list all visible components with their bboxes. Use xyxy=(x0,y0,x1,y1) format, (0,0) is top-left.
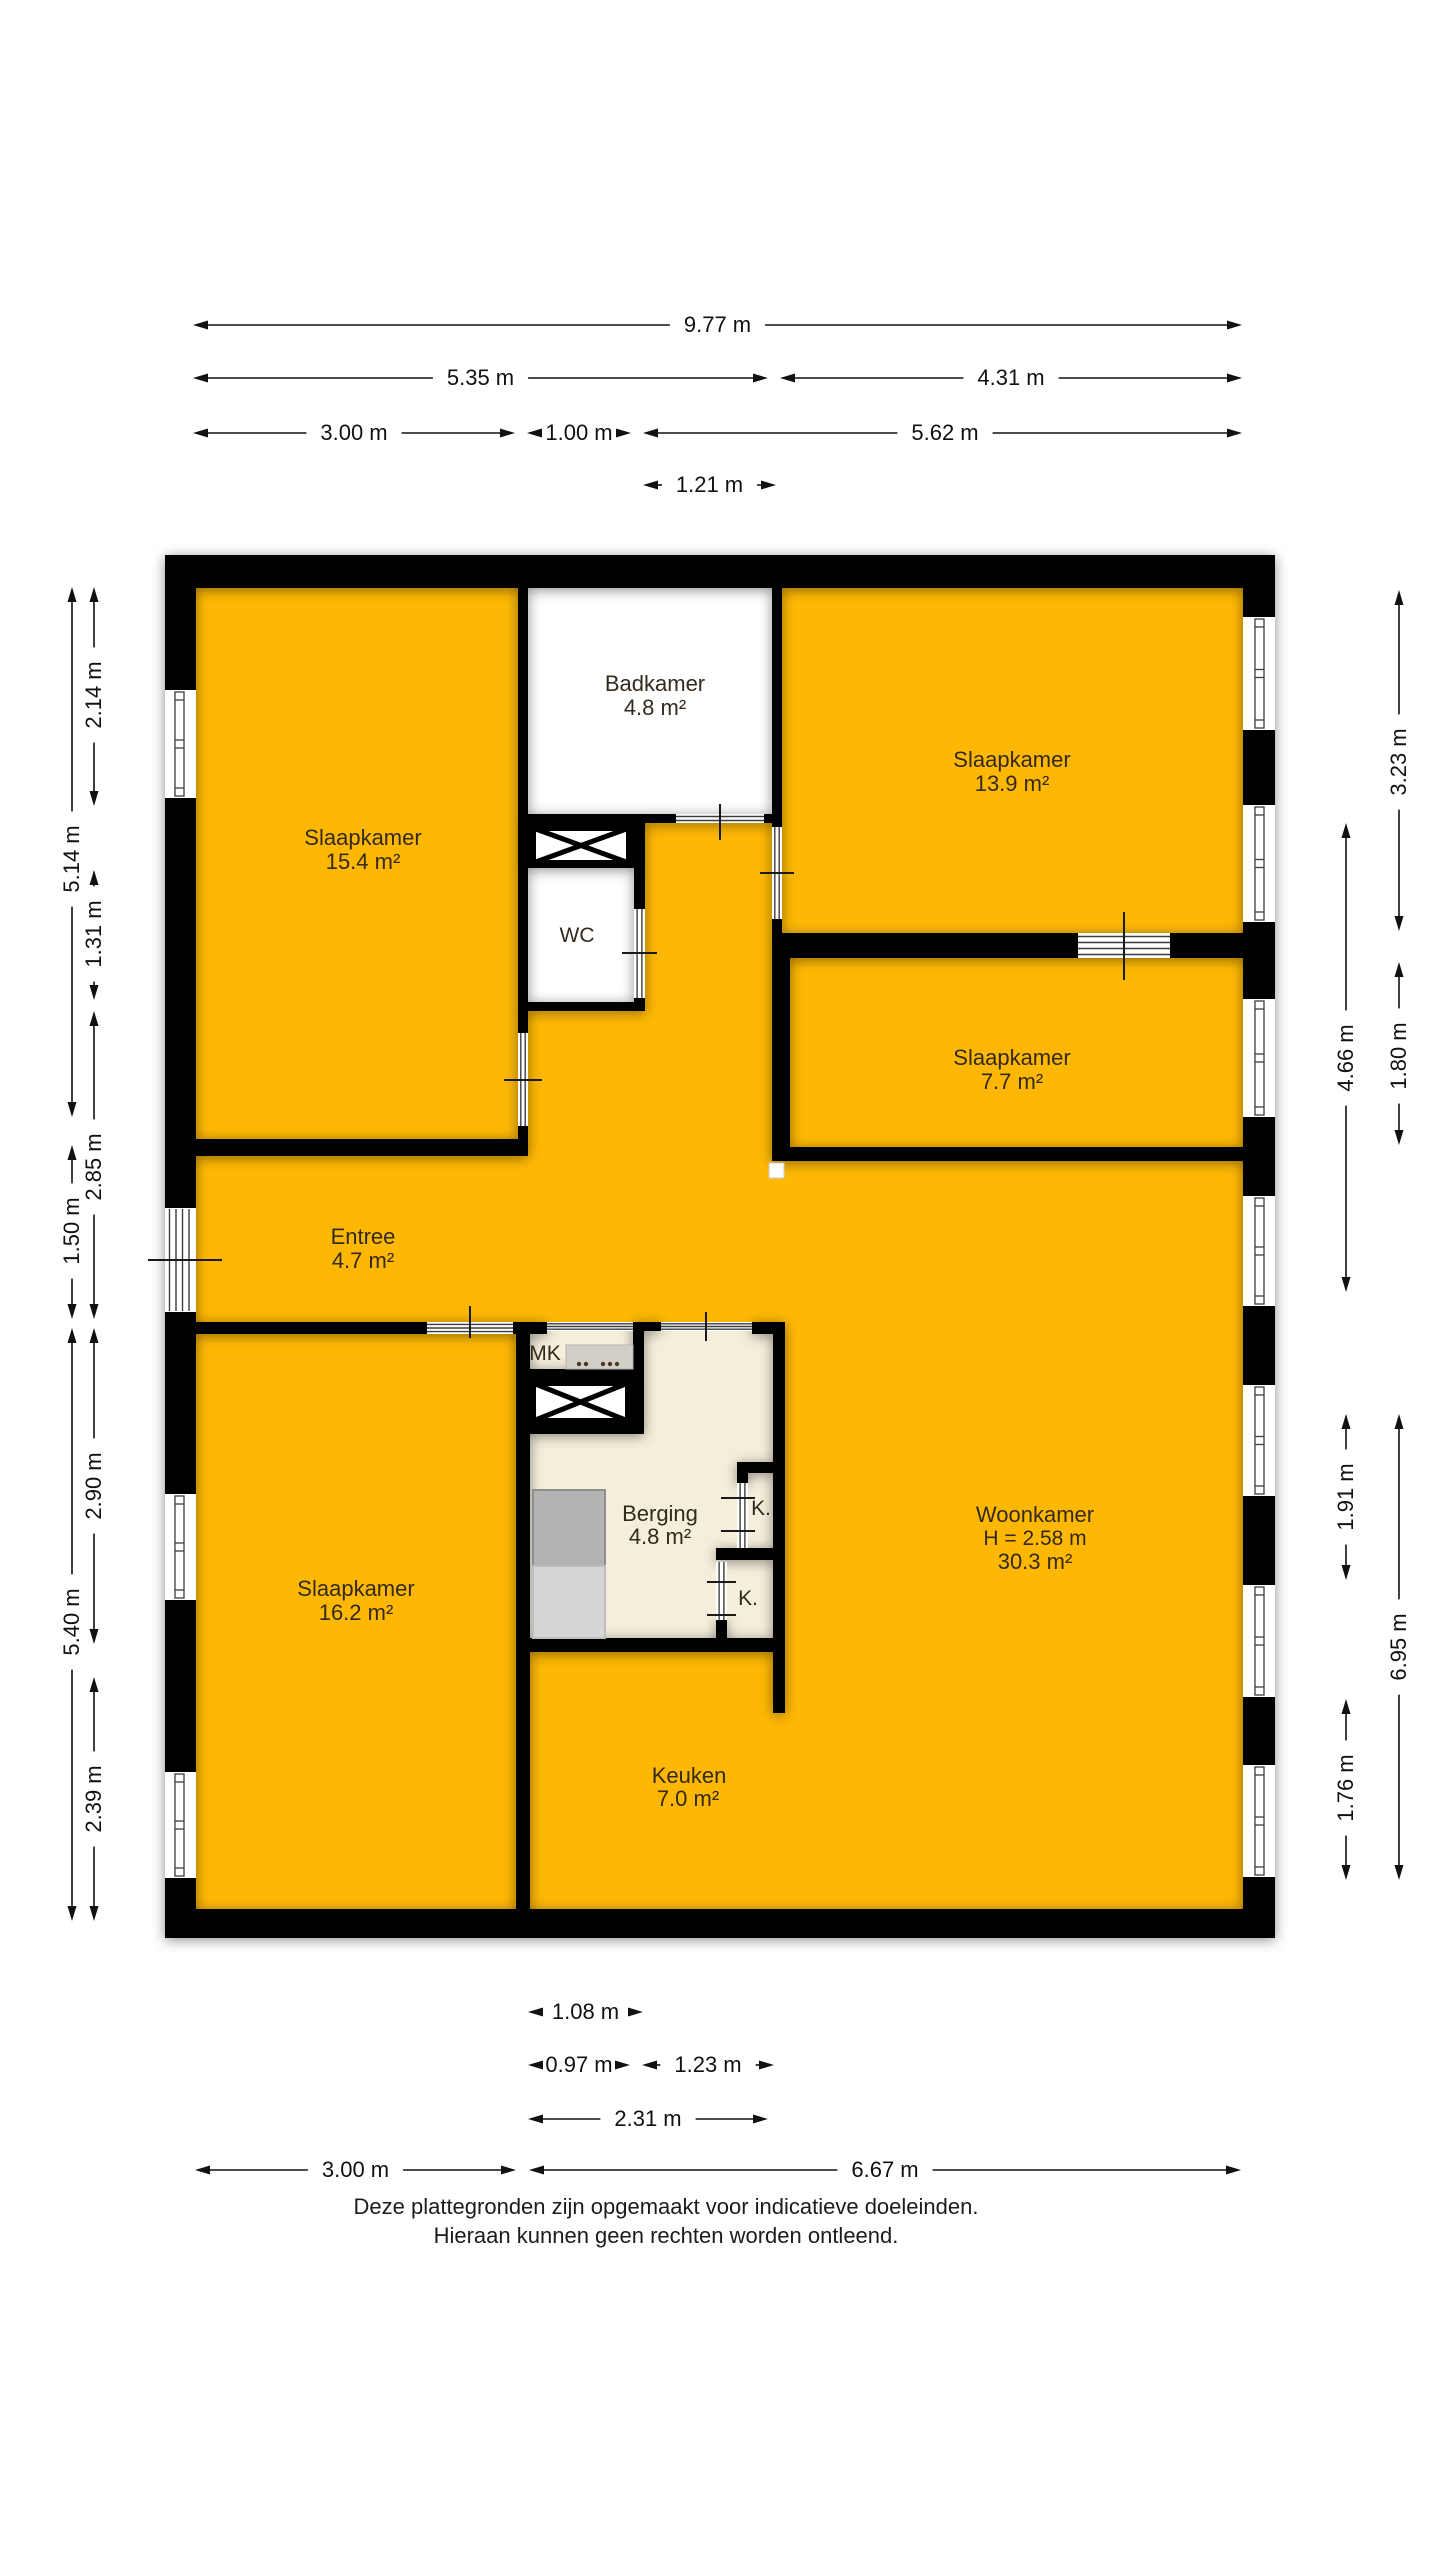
svg-text:1.76 m: 1.76 m xyxy=(1333,1754,1358,1821)
svg-text:Woonkamer: Woonkamer xyxy=(976,1502,1094,1527)
svg-text:3.00 m: 3.00 m xyxy=(320,420,387,445)
svg-text:1.31 m: 1.31 m xyxy=(81,900,106,967)
svg-text:5.40 m: 5.40 m xyxy=(59,1588,84,1655)
svg-text:3.00 m: 3.00 m xyxy=(322,2157,389,2182)
svg-text:2.39 m: 2.39 m xyxy=(81,1765,106,1832)
svg-text:Entree: Entree xyxy=(331,1224,396,1249)
svg-text:H = 2.58 m: H = 2.58 m xyxy=(983,1527,1086,1550)
svg-text:Slaapkamer: Slaapkamer xyxy=(953,1045,1070,1070)
svg-text:Deze plattegronden zijn opgema: Deze plattegronden zijn opgemaakt voor i… xyxy=(354,2194,979,2219)
svg-text:4.8 m²: 4.8 m² xyxy=(624,695,686,720)
svg-text:1.50 m: 1.50 m xyxy=(59,1197,84,1264)
svg-text:6.67 m: 6.67 m xyxy=(851,2157,918,2182)
svg-text:Badkamer: Badkamer xyxy=(605,671,705,696)
svg-text:6.95 m: 6.95 m xyxy=(1386,1613,1411,1680)
svg-text:1.00 m: 1.00 m xyxy=(545,420,612,445)
svg-text:15.4 m²: 15.4 m² xyxy=(326,849,401,874)
svg-text:Keuken: Keuken xyxy=(652,1763,727,1788)
svg-text:4.66 m: 4.66 m xyxy=(1333,1024,1358,1091)
svg-text:2.85 m: 2.85 m xyxy=(81,1133,106,1200)
svg-text:1.23 m: 1.23 m xyxy=(674,2052,741,2077)
svg-text:4.8 m²: 4.8 m² xyxy=(629,1524,691,1549)
svg-text:4.7 m²: 4.7 m² xyxy=(332,1248,394,1273)
svg-text:1.08 m: 1.08 m xyxy=(552,1999,619,2024)
svg-text:7.0 m²: 7.0 m² xyxy=(657,1786,719,1811)
svg-text:Slaapkamer: Slaapkamer xyxy=(304,825,421,850)
svg-text:2.31 m: 2.31 m xyxy=(614,2106,681,2131)
svg-text:5.35 m: 5.35 m xyxy=(447,365,514,390)
svg-text:9.77 m: 9.77 m xyxy=(684,312,751,337)
svg-text:1.80 m: 1.80 m xyxy=(1386,1022,1411,1089)
svg-text:MK: MK xyxy=(529,1342,561,1365)
svg-text:1.21 m: 1.21 m xyxy=(676,472,743,497)
svg-text:5.62 m: 5.62 m xyxy=(911,420,978,445)
svg-text:7.7 m²: 7.7 m² xyxy=(981,1069,1043,1094)
svg-text:Slaapkamer: Slaapkamer xyxy=(297,1576,414,1601)
svg-text:2.90 m: 2.90 m xyxy=(81,1452,106,1519)
svg-text:4.31 m: 4.31 m xyxy=(977,365,1044,390)
svg-text:16.2 m²: 16.2 m² xyxy=(319,1600,394,1625)
svg-text:13.9 m²: 13.9 m² xyxy=(975,771,1050,796)
svg-text:WC: WC xyxy=(560,924,595,947)
svg-text:2.14 m: 2.14 m xyxy=(81,661,106,728)
svg-text:30.3 m²: 30.3 m² xyxy=(998,1549,1073,1574)
svg-text:K.: K. xyxy=(738,1587,758,1610)
svg-text:5.14 m: 5.14 m xyxy=(59,825,84,892)
svg-text:Hieraan kunnen geen rechten wo: Hieraan kunnen geen rechten worden ontle… xyxy=(434,2223,899,2248)
svg-text:K.: K. xyxy=(751,1497,771,1520)
svg-text:3.23 m: 3.23 m xyxy=(1386,728,1411,795)
svg-text:Berging: Berging xyxy=(622,1501,698,1526)
svg-text:1.91 m: 1.91 m xyxy=(1333,1463,1358,1530)
svg-text:0.97 m: 0.97 m xyxy=(545,2052,612,2077)
svg-text:Slaapkamer: Slaapkamer xyxy=(953,747,1070,772)
